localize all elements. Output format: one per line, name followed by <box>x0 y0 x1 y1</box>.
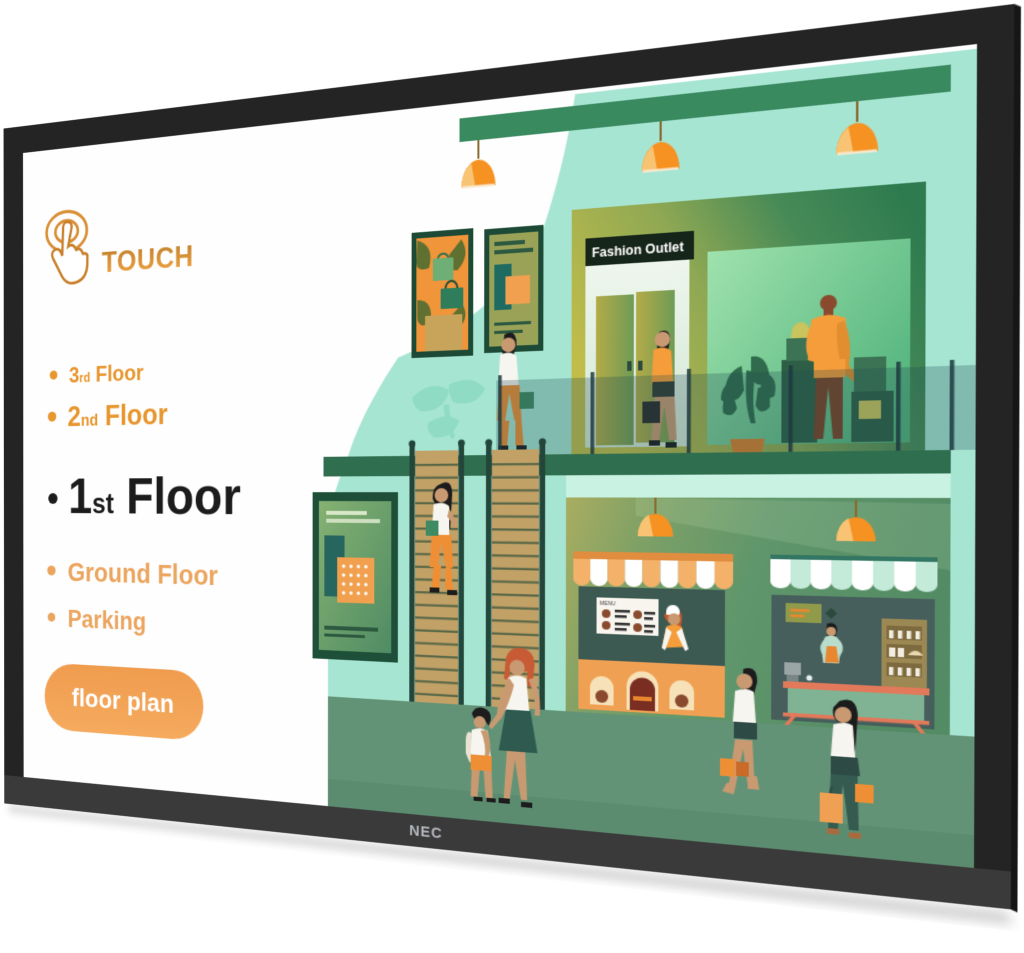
svg-text:Parking: Parking <box>68 605 147 636</box>
svg-text:MENU: MENU <box>600 600 616 607</box>
svg-text:NEC: NEC <box>409 822 442 842</box>
svg-text:Ground Floor: Ground Floor <box>68 558 218 592</box>
svg-text:TOUCH: TOUCH <box>102 241 194 279</box>
